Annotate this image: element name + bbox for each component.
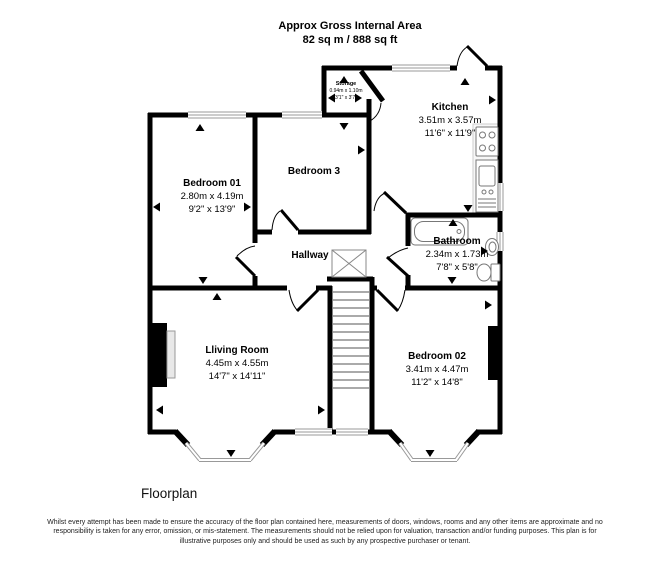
kitchen-sink-icon (476, 160, 498, 212)
direction-marker-icon (318, 406, 325, 415)
direction-marker-icon (244, 203, 251, 212)
direction-marker-icon (340, 123, 349, 130)
floorplan-drawing (0, 0, 650, 567)
kitchen-label: Kitchen 3.51m x 3.57m 11'6" x 11'9" (419, 101, 482, 140)
direction-marker-icon (485, 301, 492, 310)
direction-marker-icon (213, 293, 222, 300)
floorplan-caption: Floorplan (141, 486, 197, 501)
direction-marker-icon (196, 124, 205, 131)
floorplan-page: Approx Gross Internal Area 82 sq m / 888… (0, 0, 650, 567)
bedroom3-label: Bedroom 3 (288, 165, 340, 178)
landing-skylight-icon (332, 250, 366, 277)
living-room-label: Lliving Room 4.45m x 4.55m 14'7" x 14'11… (205, 344, 268, 383)
direction-marker-icon (461, 78, 470, 85)
window (295, 428, 332, 436)
direction-marker-icon (464, 205, 473, 212)
direction-marker-icon (358, 146, 365, 155)
direction-marker-icon (199, 277, 208, 284)
storage-label: Storage 0.94m x 1.10m 3'1" x 3'7" (329, 81, 362, 102)
bathroom-label: Bathroom 2.34m x 1.73m 7'8" x 5'8" (426, 235, 489, 274)
bedroom02-label: Bedroom 02 3.41m x 4.47m 11'2" x 14'8" (406, 350, 469, 389)
fireplace-icon (150, 323, 175, 387)
window (188, 111, 246, 119)
window (282, 111, 322, 119)
bedroom01-label: Bedroom 01 2.80m x 4.19m 9'2" x 13'9" (181, 177, 244, 216)
direction-marker-icon (489, 96, 496, 105)
direction-marker-icon (426, 450, 435, 457)
direction-marker-icon (448, 277, 457, 284)
chimney-breast-icon (488, 326, 502, 380)
staircase (332, 250, 369, 388)
window (392, 64, 450, 72)
direction-marker-icon (227, 450, 236, 457)
disclaimer-text: Whilst every attempt has been made to en… (45, 518, 605, 546)
stair-treads (333, 292, 369, 388)
window (336, 428, 368, 436)
direction-marker-icon (153, 203, 160, 212)
hallway-label: Hallway (291, 249, 328, 262)
direction-marker-icon (156, 406, 163, 415)
